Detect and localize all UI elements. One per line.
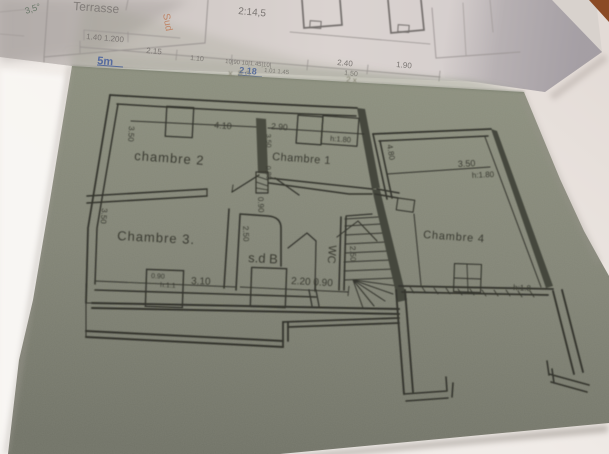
svg-text:2.40: 2.40 — [337, 58, 354, 68]
svg-text:3.50: 3.50 — [99, 208, 109, 225]
svg-text:s.d B: s.d B — [248, 250, 278, 267]
svg-text:3.50: 3.50 — [458, 158, 476, 169]
svg-text:3.50: 3.50 — [264, 134, 271, 148]
svg-text:2.90: 2.90 — [271, 121, 288, 132]
svg-text:2 x: 2 x — [346, 75, 357, 85]
svg-text:x. 8,0: x. 8,0 — [228, 68, 251, 80]
svg-text:4.10: 4.10 — [214, 120, 232, 131]
svg-text:0.90: 0.90 — [151, 273, 165, 281]
svg-text:h:1.80: h:1.80 — [472, 170, 495, 180]
svg-text:2.50: 2.50 — [348, 246, 358, 262]
svg-text:WC: WC — [325, 245, 338, 264]
svg-text:1.90: 1.90 — [396, 60, 413, 70]
svg-text:h:1.1: h:1.1 — [160, 282, 176, 290]
svg-text:3.50: 3.50 — [126, 126, 136, 143]
svg-text:2.50: 2.50 — [241, 226, 251, 242]
svg-text:h:1.8: h:1.8 — [513, 283, 532, 293]
svg-text:2.20 0.90: 2.20 0.90 — [291, 276, 334, 289]
svg-text:h:1.80: h:1.80 — [330, 134, 351, 144]
svg-text:0.80: 0.80 — [264, 166, 271, 180]
svg-text:0.90: 0.90 — [256, 197, 266, 213]
